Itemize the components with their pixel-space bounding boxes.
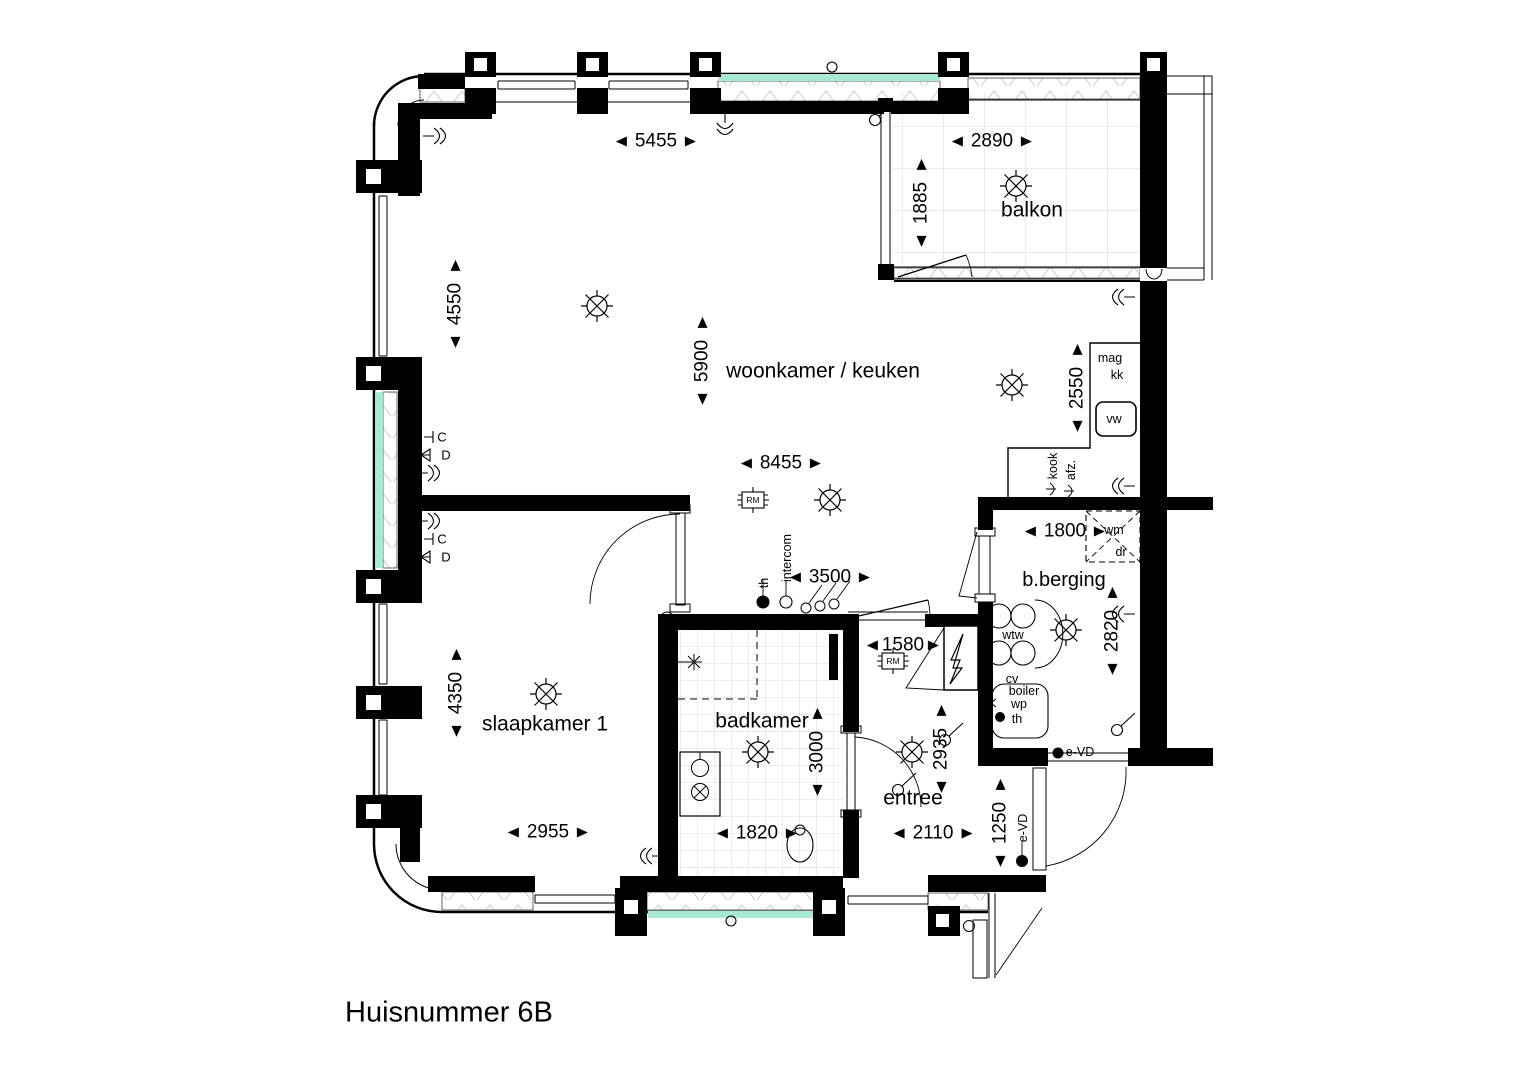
dim-arrow-up-icon <box>1107 587 1117 598</box>
dimension-slaapkamer-width: 2955 <box>508 823 588 842</box>
floorplan-page: woonkamer / keuken balkon slaapkamer 1 b… <box>0 0 1527 1080</box>
dim-arrow-down-icon <box>995 856 1005 867</box>
dim-arrow-right-icon <box>928 640 939 650</box>
label-wtw: wtw <box>1002 629 1024 642</box>
dim-arrow-right-icon <box>961 828 972 838</box>
dim-arrow-left-icon <box>508 827 519 837</box>
label-boiler: boiler <box>1009 685 1040 698</box>
label-thermostaat-berging: th <box>1012 713 1022 726</box>
dim-arrow-left-icon <box>1025 526 1036 536</box>
dimension-entree-height: 2935 <box>932 705 951 793</box>
label-cai-2: C <box>437 533 446 546</box>
dimension-badkamer-width: 1820 <box>717 824 797 843</box>
dim-arrow-down-icon <box>1072 421 1082 432</box>
dim-arrow-up-icon <box>697 317 707 328</box>
dimension-left-window: 4550 <box>446 260 465 348</box>
label-kookplaat: kook <box>1047 453 1060 479</box>
dimension-berging-depth: 2820 <box>1103 587 1122 675</box>
dim-arrow-right-icon <box>810 458 821 468</box>
dimension-hal-width: 3500 <box>790 568 870 587</box>
label-thermostaat-hal: th <box>758 578 771 588</box>
dim-arrow-right-icon <box>786 828 797 838</box>
dim-arrow-down-icon <box>697 394 707 405</box>
dim-arrow-right-icon <box>1094 526 1105 536</box>
dimension-balkon-depth: 1885 <box>912 159 931 247</box>
label-evd-berging: e-VD <box>1066 746 1094 759</box>
room-label-berging: b.berging <box>1022 570 1105 590</box>
label-afzuiging: afz. <box>1065 460 1078 480</box>
dimension-voordeur: 1250 <box>991 779 1010 867</box>
label-data-2: D <box>441 551 450 564</box>
dim-arrow-left-icon <box>717 828 728 838</box>
dim-arrow-up-icon <box>916 159 926 170</box>
dim-arrow-left-icon <box>894 828 905 838</box>
dimension-meterkast-width: 1580 <box>867 636 939 655</box>
dim-arrow-left-icon <box>790 572 801 582</box>
dim-arrow-right-icon <box>577 827 588 837</box>
dimension-woonkamer-height: 5900 <box>693 317 712 405</box>
dimension-berging-width: 1800 <box>1025 522 1105 541</box>
dimension-balkon-width: 2890 <box>952 132 1032 151</box>
room-label-woonkamer: woonkamer / keuken <box>726 361 920 382</box>
label-rookmelder-1: RM <box>746 496 759 505</box>
dimension-entree-width: 2110 <box>894 824 973 843</box>
dim-arrow-right-icon <box>859 572 870 582</box>
room-label-balkon: balkon <box>1001 200 1063 221</box>
dimension-badkamer-height: 3000 <box>808 708 827 796</box>
dim-arrow-left-icon <box>867 640 878 650</box>
label-cai-1: C <box>437 431 446 444</box>
dim-arrow-right-icon <box>1021 136 1032 146</box>
meterkast <box>944 626 978 690</box>
dim-arrow-left-icon <box>952 136 963 146</box>
label-warmtepomp: wp <box>1011 698 1027 711</box>
dim-arrow-down-icon <box>450 337 460 348</box>
dim-arrow-up-icon <box>450 260 460 271</box>
dim-arrow-up-icon <box>1072 344 1082 355</box>
dim-arrow-up-icon <box>936 705 946 716</box>
room-label-badkamer: badkamer <box>715 711 808 732</box>
label-vaatwasser: vw <box>1106 413 1121 426</box>
dimension-top-window: 5455 <box>616 132 696 151</box>
dim-arrow-up-icon <box>812 708 822 719</box>
dim-arrow-down-icon <box>812 785 822 796</box>
dim-arrow-up-icon <box>451 649 461 660</box>
room-label-slaapkamer: slaapkamer 1 <box>482 714 608 735</box>
dim-arrow-down-icon <box>916 236 926 247</box>
dim-arrow-down-icon <box>936 782 946 793</box>
floorplan-drawing <box>0 0 1527 1080</box>
dim-arrow-up-icon <box>995 779 1005 790</box>
dimension-slaapkamer-height: 4350 <box>447 649 466 737</box>
plan-title: Huisnummer 6B <box>345 997 553 1030</box>
dimension-woonkamer-width: 8455 <box>741 454 821 473</box>
label-magnetron: mag <box>1098 352 1122 365</box>
label-data-1: D <box>441 449 450 462</box>
dim-arrow-left-icon <box>616 136 627 146</box>
dimension-keuken-depth: 2550 <box>1068 344 1087 432</box>
dim-arrow-down-icon <box>1107 664 1117 675</box>
label-rookmelder-2: RM <box>886 657 899 666</box>
label-wasmachine: wm <box>1104 524 1123 537</box>
label-evd-entree: e-VD <box>1017 814 1030 842</box>
dim-arrow-left-icon <box>741 458 752 468</box>
dim-arrow-right-icon <box>685 136 696 146</box>
label-koelkast: kk <box>1111 369 1124 382</box>
label-droger: dr <box>1115 546 1126 559</box>
dim-arrow-down-icon <box>451 726 461 737</box>
